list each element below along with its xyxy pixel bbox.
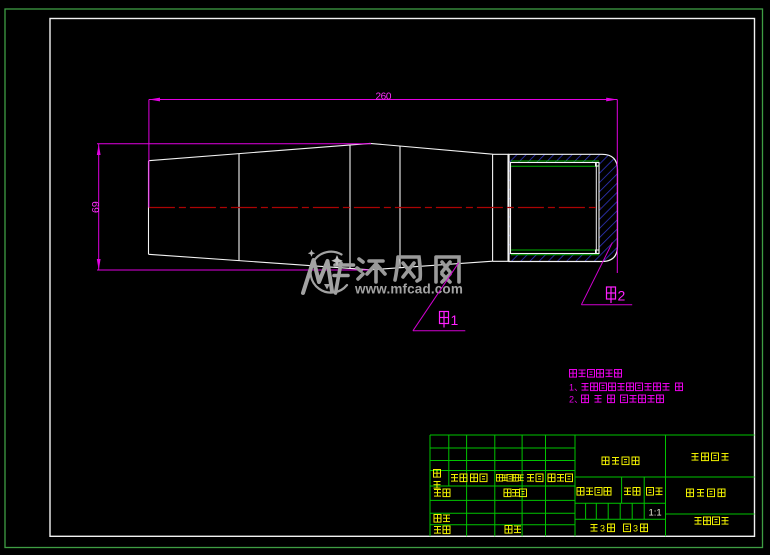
svg-text::: :: [614, 369, 617, 379]
svg-text:2: 2: [618, 288, 626, 304]
svg-text:260: 260: [376, 91, 392, 102]
svg-text:2、: 2、: [569, 395, 583, 405]
svg-text:1:1: 1:1: [649, 508, 662, 519]
svg-text:1、: 1、: [569, 383, 583, 393]
svg-text:www.mfcad.com: www.mfcad.com: [354, 282, 463, 297]
svg-text:3: 3: [633, 524, 638, 534]
svg-text:1: 1: [451, 312, 459, 328]
svg-text:3: 3: [600, 524, 605, 534]
svg-text:69: 69: [90, 201, 102, 213]
